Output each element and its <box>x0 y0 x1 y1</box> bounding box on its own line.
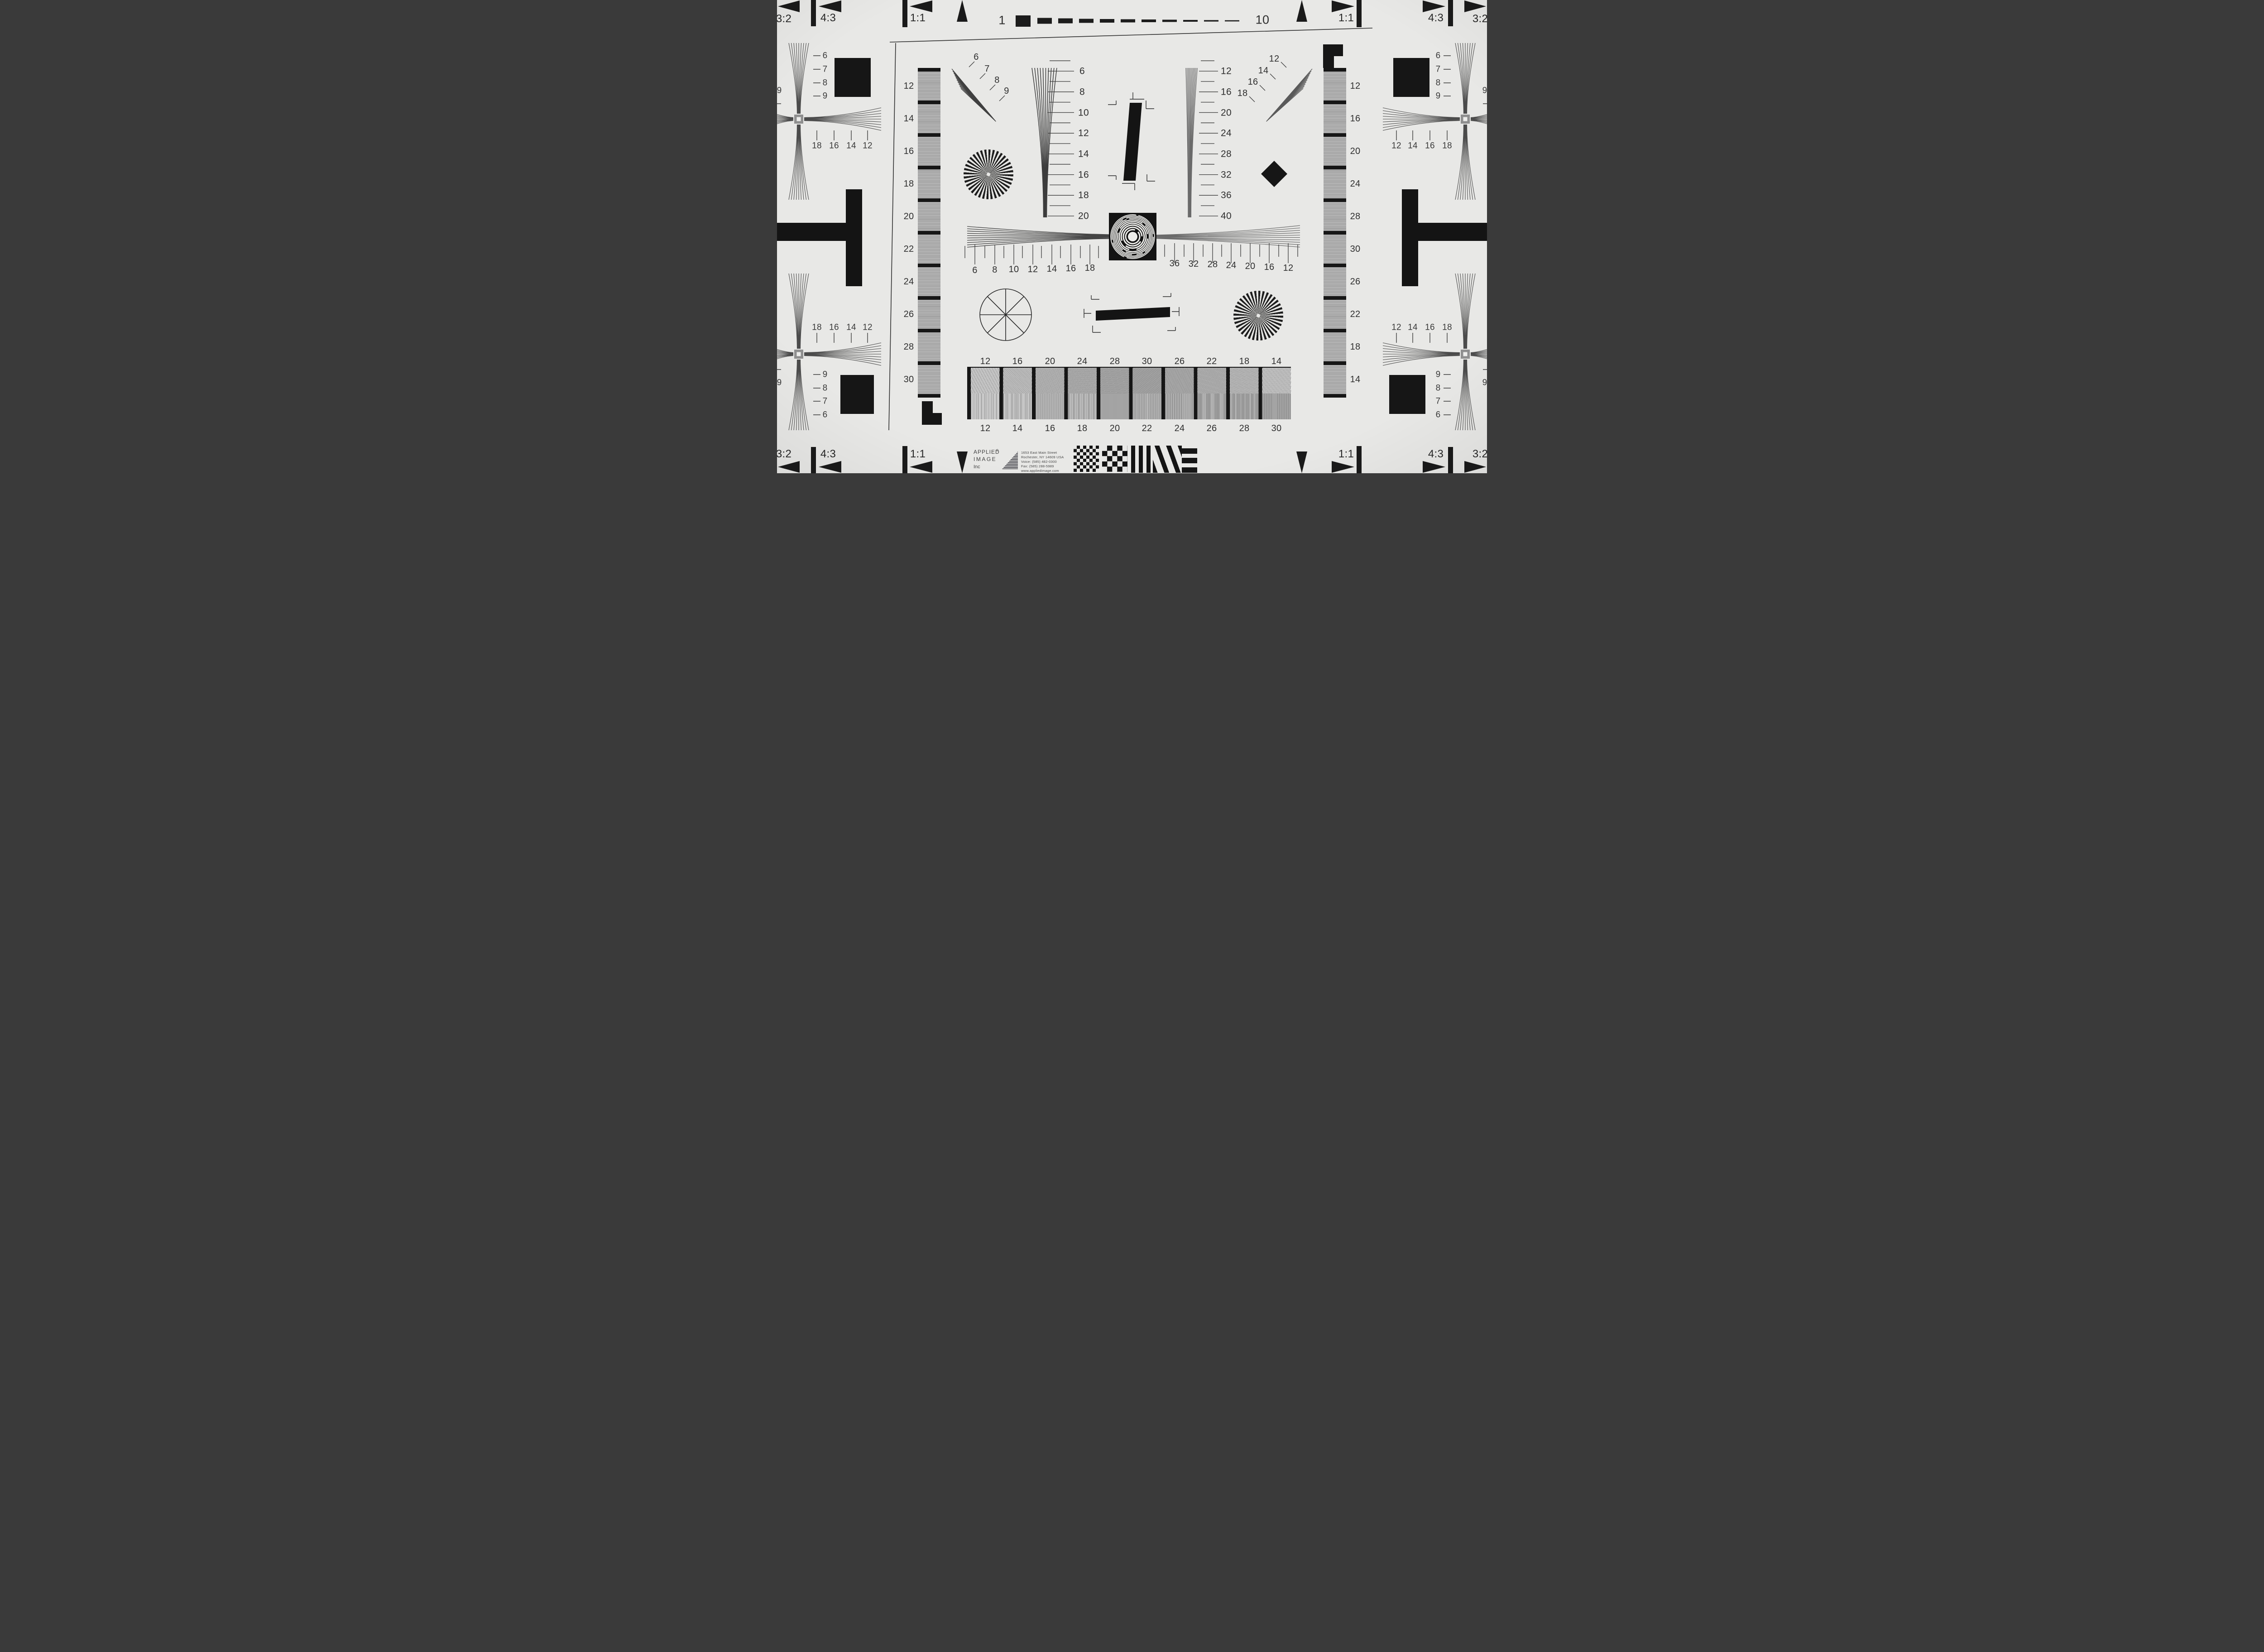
tilt-right-label: 16 <box>1248 77 1258 86</box>
siemens-star-right <box>1233 291 1283 341</box>
v-wedge-left-label: 18 <box>1078 191 1089 200</box>
h-wedge-left-label: 18 <box>1085 264 1095 273</box>
horizontal-wedge-right <box>1156 226 1300 263</box>
left-strip-label: 18 <box>904 179 914 188</box>
corner-scale-label: 12 <box>1391 323 1401 332</box>
slanted-bar-horizontal <box>1096 307 1170 321</box>
v-wedge-right-label: 36 <box>1221 191 1232 200</box>
left-vertical-line <box>889 43 896 430</box>
horizontal-bar-pattern <box>1182 458 1197 463</box>
corner-scale-label: 12 <box>863 142 873 150</box>
v-wedge-left-label: 12 <box>1078 129 1089 138</box>
h-wedge-right-label: 20 <box>1245 262 1256 271</box>
bar-bottom-label: 22 <box>1142 424 1152 433</box>
v-wedge-right-label: 28 <box>1221 149 1232 159</box>
right-strip-label: 26 <box>1350 277 1361 286</box>
bar-top-label: 24 <box>1077 357 1088 366</box>
aspect-label: 4:3 <box>1428 13 1444 24</box>
h-wedge-left-label: 14 <box>1047 264 1057 274</box>
bar-bottom-label: 14 <box>1012 424 1023 433</box>
black-patch-top-left <box>835 58 871 97</box>
left-strip-label: 16 <box>904 147 914 156</box>
bar-top-label: 30 <box>1142 357 1152 366</box>
vertical-wedge-left <box>1032 61 1074 217</box>
bar-bottom-label: 20 <box>1110 424 1120 433</box>
right-strip-label: 22 <box>1350 310 1361 319</box>
bar-bottom-label: 30 <box>1271 424 1282 433</box>
h-wedge-right-label: 24 <box>1226 261 1237 270</box>
left-strip-flag-base <box>922 413 942 425</box>
vertical-wedge-right <box>1186 61 1218 217</box>
corner-diag-label: 8 <box>1436 384 1441 393</box>
aspect-label: 3:2 <box>777 14 791 24</box>
h-wedge-right-label: 36 <box>1170 259 1180 268</box>
corner-diag-label: 9 <box>823 370 828 379</box>
logo-address-line: Rochester, NY 14609 USA <box>1021 456 1064 459</box>
v-wedge-right-label: 20 <box>1221 108 1232 118</box>
v-wedge-right-label: 12 <box>1221 67 1232 76</box>
logo-address-line: www.appliedimage.com <box>1021 469 1059 473</box>
corner-scale-label: 14 <box>846 142 856 150</box>
corner-diag-label: 6 <box>823 52 828 60</box>
left-strip-label: 24 <box>904 277 914 286</box>
left-strip-label: 14 <box>904 114 914 123</box>
aspect-label: 1:1 <box>1338 449 1354 460</box>
v-wedge-left-label: 6 <box>1079 67 1085 76</box>
corner-diag-label: 7 <box>1436 397 1441 406</box>
h-wedge-right-label: 12 <box>1283 264 1294 273</box>
aspect-label: 4:3 <box>820 449 836 460</box>
corner-diag-label: 6 <box>823 411 828 419</box>
left-strip-label: 12 <box>904 82 914 91</box>
corner-diag-label: 8 <box>823 384 828 393</box>
tilt-left-label: 8 <box>994 76 999 85</box>
bar-bottom-label: 28 <box>1239 424 1250 433</box>
bar-top-label: 16 <box>1012 357 1023 366</box>
bar-bottom-label: 16 <box>1045 424 1055 433</box>
corner-diag-label: 7 <box>1436 65 1441 74</box>
h-wedge-right-label: 32 <box>1189 259 1199 269</box>
left-grayscale-strip <box>918 68 940 398</box>
bar-bottom-label: 12 <box>980 424 991 433</box>
tilt-left-label: 9 <box>1004 86 1009 96</box>
corner-diag-label: 9 <box>823 92 828 101</box>
bar-bottom-label: 26 <box>1207 424 1217 433</box>
corner-edge-label: 9 <box>1482 379 1487 387</box>
corner-edge-label: 9 <box>777 86 782 95</box>
siemens-star-left <box>964 149 1013 199</box>
left-strip-label: 28 <box>904 342 914 351</box>
corner-edge-label: 9 <box>1482 86 1487 95</box>
corner-diag-label: 7 <box>823 65 828 74</box>
bar-top-label: 28 <box>1110 357 1120 366</box>
tilt-right-label: 18 <box>1238 89 1248 98</box>
aspect-label: 4:3 <box>1428 449 1444 460</box>
h-wedge-right-label: 28 <box>1208 260 1218 269</box>
v-wedge-right-label: 32 <box>1221 170 1232 180</box>
diagonal-bars-pattern <box>1153 446 1182 473</box>
tilt-right-label: 14 <box>1258 66 1269 75</box>
corner-diag-label: 9 <box>1436 370 1441 379</box>
bar-top-label: 22 <box>1207 357 1217 366</box>
horizontal-bar-pattern <box>1182 467 1197 473</box>
black-diamond <box>1261 161 1287 187</box>
aspect-label: 1:1 <box>1338 13 1354 24</box>
logo-line3: Inc <box>974 464 980 470</box>
tilt-right-label: 12 <box>1269 54 1280 63</box>
right-strip-label: 28 <box>1350 212 1361 221</box>
h-wedge-left-label: 8 <box>992 265 997 274</box>
corner-diag-label: 8 <box>1436 79 1441 87</box>
bar-top-label: 20 <box>1045 357 1055 366</box>
h-wedge-right-label: 16 <box>1264 263 1275 272</box>
horizontal-bar-pattern <box>1182 448 1197 454</box>
v-wedge-right-label: 24 <box>1221 129 1232 138</box>
iso-resolution-test-chart: 1 10 3:2 4:3 1:1 1:1 4:3 3:2 3:2 4:3 1:1… <box>777 0 1487 473</box>
right-strip-label: 16 <box>1350 114 1361 123</box>
corner-scale-label: 14 <box>1408 323 1418 332</box>
left-strip-flag <box>922 401 933 413</box>
corner-edge-label: 9 <box>777 379 782 387</box>
aspect-label: 1:1 <box>910 13 926 24</box>
bottom-bar-dividers <box>967 367 1291 419</box>
left-strip-label: 30 <box>904 375 914 384</box>
v-wedge-left-label: 20 <box>1078 211 1089 221</box>
right-strip-label: 30 <box>1350 245 1361 254</box>
black-patch-bottom-left <box>840 375 874 414</box>
fine-checkerboard <box>1074 446 1099 472</box>
ruler-end-label: 10 <box>1256 14 1270 26</box>
right-strip-label: 24 <box>1350 179 1361 188</box>
corner-scale-label: 16 <box>1425 323 1435 332</box>
v-wedge-left-label: 10 <box>1078 108 1089 118</box>
v-wedge-left-label: 14 <box>1078 149 1089 159</box>
right-strip-label: 20 <box>1350 147 1361 156</box>
corner-diag-label: 6 <box>1436 411 1441 419</box>
tilted-wedge-left <box>952 62 1005 121</box>
ruler-start-label: 1 <box>998 14 1005 27</box>
h-wedge-left-label: 6 <box>972 266 977 275</box>
aspect-label: 3:2 <box>777 449 791 460</box>
corner-scale-label: 16 <box>1425 142 1435 150</box>
bar-top-label: 18 <box>1239 357 1250 366</box>
spoked-circle <box>980 289 1031 341</box>
aspect-label: 4:3 <box>820 13 836 24</box>
logo-registered-icon: ® <box>996 449 998 452</box>
bar-top-label: 12 <box>980 357 991 366</box>
bar-top-label: 26 <box>1175 357 1185 366</box>
logo-address-line: 1653 East Main Street <box>1021 451 1057 455</box>
horizontal-wedge-left <box>965 226 1109 264</box>
top-ruler-dashes <box>1016 15 1239 27</box>
right-strip-label: 14 <box>1350 375 1361 384</box>
right-strip-label: 18 <box>1350 342 1361 351</box>
black-patch-bottom-right <box>1389 375 1425 414</box>
coarse-checkerboard <box>1102 446 1127 472</box>
corner-diag-label: 9 <box>1436 92 1441 101</box>
bar-top-label: 14 <box>1271 357 1282 366</box>
v-wedge-left-label: 8 <box>1079 87 1085 97</box>
corner-scale-label: 18 <box>812 323 822 332</box>
left-strip-label: 26 <box>904 310 914 319</box>
h-wedge-left-label: 12 <box>1028 265 1038 274</box>
v-wedge-left-label: 16 <box>1078 170 1089 180</box>
top-diagonal-line <box>890 28 1372 42</box>
corner-scale-label: 18 <box>1442 323 1452 332</box>
right-strip-label: 12 <box>1350 82 1361 91</box>
logo-address-line: Fax: (585) 288-5989 <box>1021 465 1054 468</box>
logo-line2: IMAGE <box>974 456 997 462</box>
corner-scale-label: 18 <box>1442 142 1452 150</box>
tilt-left-label: 6 <box>974 53 979 62</box>
center-target <box>1103 206 1162 266</box>
logo-triangle <box>1000 451 1019 469</box>
corner-diag-label: 6 <box>1436 52 1441 60</box>
corner-diag-label: 8 <box>823 79 828 87</box>
corner-scale-label: 14 <box>1408 142 1418 150</box>
aspect-label: 3:2 <box>1473 449 1487 460</box>
corner-diag-label: 7 <box>823 397 828 406</box>
bar-bottom-label: 18 <box>1077 424 1088 433</box>
logo-address-line: Voice: (585) 482-0300 <box>1021 460 1057 464</box>
v-wedge-right-label: 16 <box>1221 87 1232 97</box>
corner-scale-label: 18 <box>812 142 822 150</box>
v-wedge-right-label: 40 <box>1221 211 1232 221</box>
aspect-label: 3:2 <box>1473 14 1487 24</box>
tilt-left-label: 7 <box>984 64 989 73</box>
right-strip-flag-base <box>1323 44 1343 56</box>
corner-scale-label: 16 <box>829 323 839 332</box>
corner-scale-label: 14 <box>846 323 856 332</box>
left-strip-label: 22 <box>904 245 914 254</box>
h-wedge-left-label: 16 <box>1066 264 1076 273</box>
aspect-label: 1:1 <box>910 449 926 460</box>
corner-scale-label: 12 <box>1391 142 1401 150</box>
corner-scale-label: 12 <box>863 323 873 332</box>
corner-scale-label: 16 <box>829 142 839 150</box>
vertical-bars-pattern <box>1131 446 1151 473</box>
black-patch-top-right <box>1393 58 1429 97</box>
right-strip-flag <box>1323 56 1334 68</box>
slanted-bar-vertical <box>1123 103 1142 181</box>
left-strip-label: 20 <box>904 212 914 221</box>
right-grayscale-strip <box>1324 68 1346 398</box>
h-wedge-left-label: 10 <box>1009 265 1019 274</box>
bar-bottom-label: 24 <box>1175 424 1185 433</box>
